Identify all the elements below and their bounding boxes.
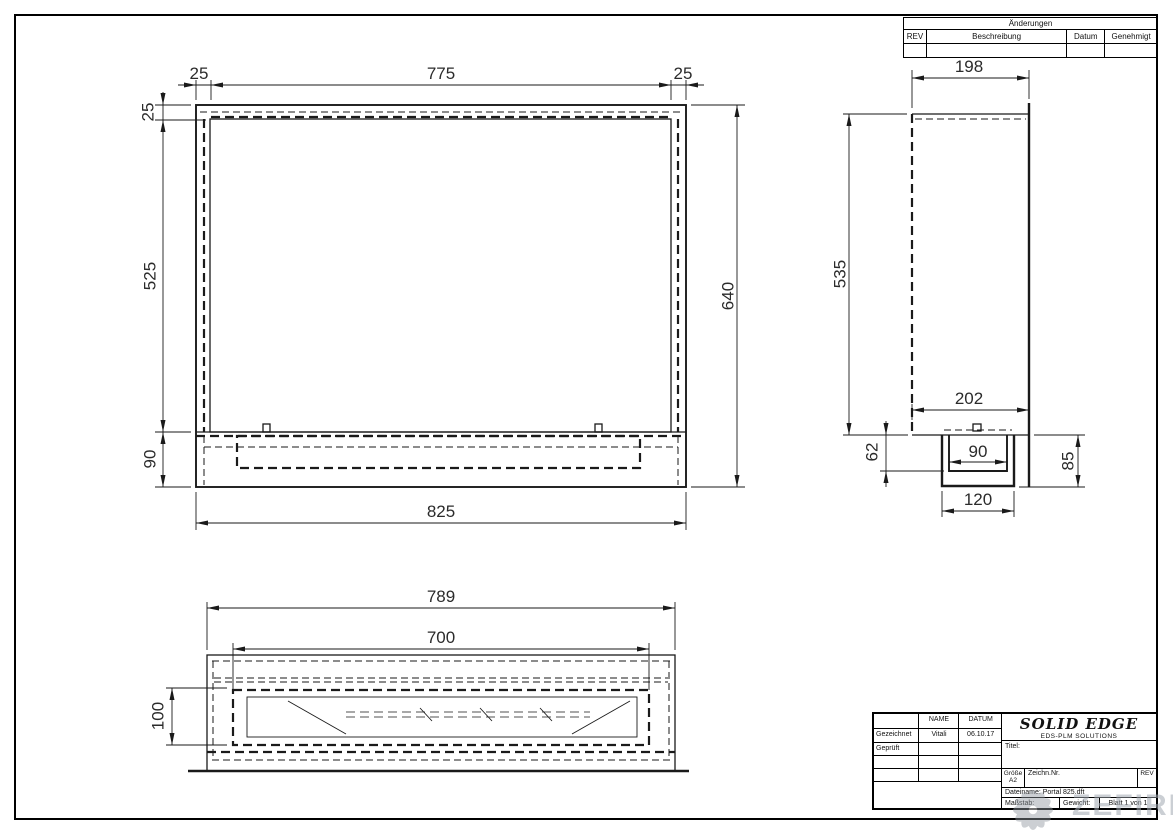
signature-header-blank — [874, 714, 919, 728]
revision-table: Änderungen REV Beschreibung Datum Genehm… — [903, 17, 1158, 58]
drawing-canvas: 25 775 25 25 525 90 640 825 — [0, 0, 1173, 834]
revision-col-beschreibung: Beschreibung — [927, 30, 1067, 44]
revision-table-title: Änderungen — [903, 17, 1158, 30]
revision-empty-cell — [1067, 44, 1105, 58]
checked-label: Geprüft — [874, 743, 919, 755]
dim-side-body-height: 535 — [830, 260, 849, 288]
dim-front-overall-height: 640 — [718, 282, 737, 310]
size-cell: Größe A2 — [1002, 769, 1025, 787]
filename-cell: Dateiname: Portal 825.dft — [1002, 788, 1156, 798]
clip-left — [263, 424, 270, 432]
revision-empty-cell — [1105, 44, 1158, 58]
titel-cell: Titel: — [1002, 741, 1156, 769]
drawn-name: Vitali — [919, 729, 960, 742]
dim-front-opening-height: 525 — [140, 262, 159, 290]
title-block-blank-area — [874, 782, 1001, 808]
dim-front-right-wall: 25 — [674, 64, 693, 83]
dim-side-tray-height: 85 — [1058, 452, 1077, 471]
drawn-label: Gezeichnet — [874, 729, 919, 742]
revision-empty-cell — [927, 44, 1067, 58]
spare-row-cell — [874, 769, 919, 781]
sheet-number-cell: Blatt 1 von 1 — [1100, 798, 1156, 808]
spare-row-cell — [919, 756, 960, 768]
spare-row-cell — [959, 769, 1001, 781]
dim-front-base-height: 90 — [140, 450, 159, 469]
dim-side-tray-inner-width: 90 — [969, 442, 988, 461]
revision-col-rev: REV — [904, 30, 927, 44]
title-block: NAME DATUM Gezeichnet Vitali 06.10.17 Ge… — [872, 712, 1158, 810]
checked-date — [959, 743, 1001, 755]
rev-cell: REV — [1137, 769, 1156, 787]
signature-header-name: NAME — [919, 714, 960, 728]
signature-header-datum: DATUM — [959, 714, 1001, 728]
weight-cell: Gewicht: — [1060, 798, 1100, 808]
drawing-sheet: { "sheet": { "background": "#ffffff", "l… — [0, 0, 1173, 834]
dim-side-depth: 198 — [955, 57, 983, 76]
revision-col-genehmigt: Genehmigt — [1105, 30, 1158, 44]
filename-label: Dateiname: — [1005, 789, 1041, 796]
dim-front-opening-width: 775 — [427, 64, 455, 83]
checked-name — [919, 743, 960, 755]
bottom-view: 789 700 100 — [148, 587, 689, 771]
dim-bottom-overall-width: 789 — [427, 587, 455, 606]
spare-row-cell — [919, 769, 960, 781]
side-view: 198 535 202 62 90 85 120 — [830, 57, 1085, 517]
size-value: A2 — [1002, 777, 1024, 784]
size-label: Größe — [1002, 770, 1024, 777]
title-block-signatures: NAME DATUM Gezeichnet Vitali 06.10.17 Ge… — [874, 714, 1002, 808]
dim-front-left-wall: 25 — [190, 64, 209, 83]
scale-cell: Maßstab: — [1002, 798, 1060, 808]
dim-side-tray-inner-depth: 62 — [862, 443, 881, 462]
revision-empty-cell — [904, 44, 927, 58]
revision-col-datum: Datum — [1067, 30, 1105, 44]
title-block-main: SOLID EDGE EDS-PLM SOLUTIONS Titel: Größ… — [1002, 714, 1156, 808]
dim-bottom-tray-width: 700 — [427, 628, 455, 647]
dim-side-base-depth: 202 — [955, 389, 983, 408]
solid-edge-sub: EDS-PLM SOLUTIONS — [1002, 733, 1156, 740]
spare-row-cell — [959, 756, 1001, 768]
dim-front-overall-width: 825 — [427, 502, 455, 521]
dim-bottom-tray-depth: 100 — [148, 702, 167, 730]
dim-front-top-wall: 25 — [138, 103, 157, 122]
solid-edge-logo: SOLID EDGE — [1002, 716, 1156, 733]
drawn-date: 06.10.17 — [959, 729, 1001, 742]
dim-side-tray-width: 120 — [964, 490, 992, 509]
clip-right — [595, 424, 602, 432]
spare-row-cell — [874, 756, 919, 768]
filename-value: Portal 825.dft — [1043, 789, 1085, 796]
drawing-number-cell: Zeichn.Nr. — [1025, 769, 1137, 787]
front-view: 25 775 25 25 525 90 640 825 — [138, 64, 745, 530]
